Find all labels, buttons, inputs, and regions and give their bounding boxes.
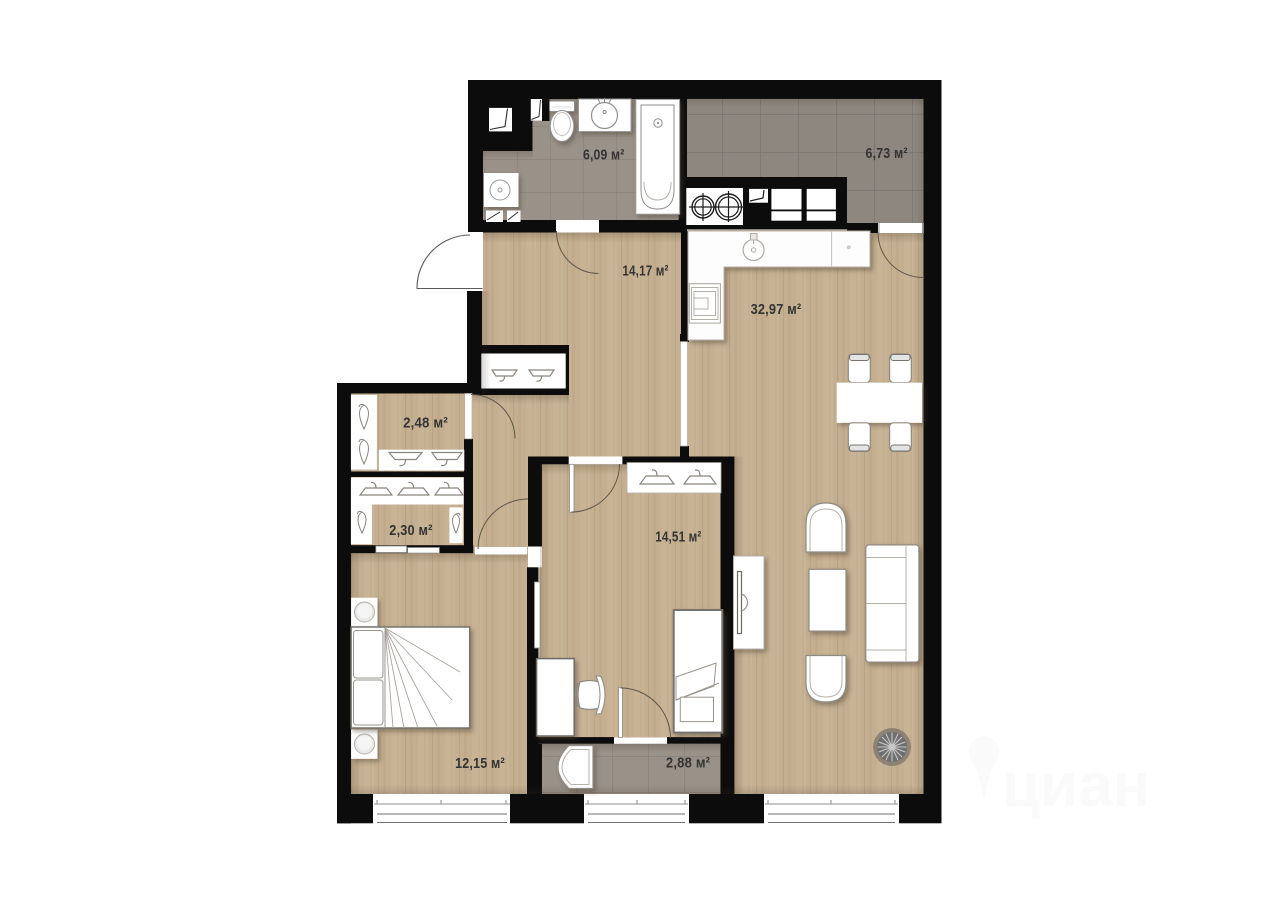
- svg-text:2,48 м²: 2,48 м²: [403, 415, 448, 432]
- svg-text:6,73 м²: 6,73 м²: [866, 145, 908, 162]
- svg-text:6,09 м²: 6,09 м²: [583, 147, 625, 164]
- svg-text:14,51 м²: 14,51 м²: [655, 529, 701, 546]
- svg-text:2,88 м²: 2,88 м²: [666, 755, 710, 772]
- svg-text:32,97 м²: 32,97 м²: [751, 301, 802, 318]
- svg-text:12,15 м²: 12,15 м²: [455, 755, 505, 772]
- svg-text:циан: циан: [1002, 751, 1150, 820]
- svg-text:14,17 м²: 14,17 м²: [622, 263, 668, 280]
- svg-text:2,30 м²: 2,30 м²: [389, 522, 432, 539]
